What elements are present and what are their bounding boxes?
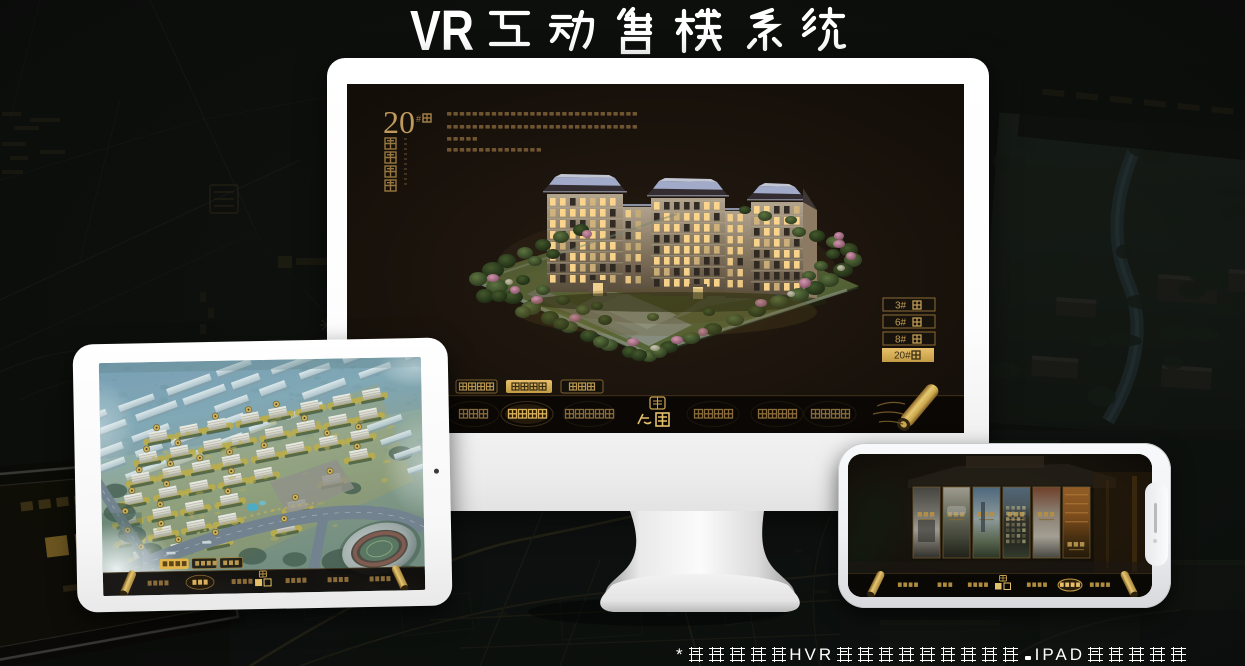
svg-text:6#: 6# bbox=[895, 318, 907, 329]
svg-text:3#: 3# bbox=[895, 301, 907, 312]
svg-text:20: 20 bbox=[383, 104, 415, 140]
svg-text:8#: 8# bbox=[895, 335, 907, 346]
svg-text:#: # bbox=[416, 114, 421, 124]
svg-text:VR: VR bbox=[410, 4, 474, 56]
svg-text:20#: 20# bbox=[894, 351, 911, 362]
